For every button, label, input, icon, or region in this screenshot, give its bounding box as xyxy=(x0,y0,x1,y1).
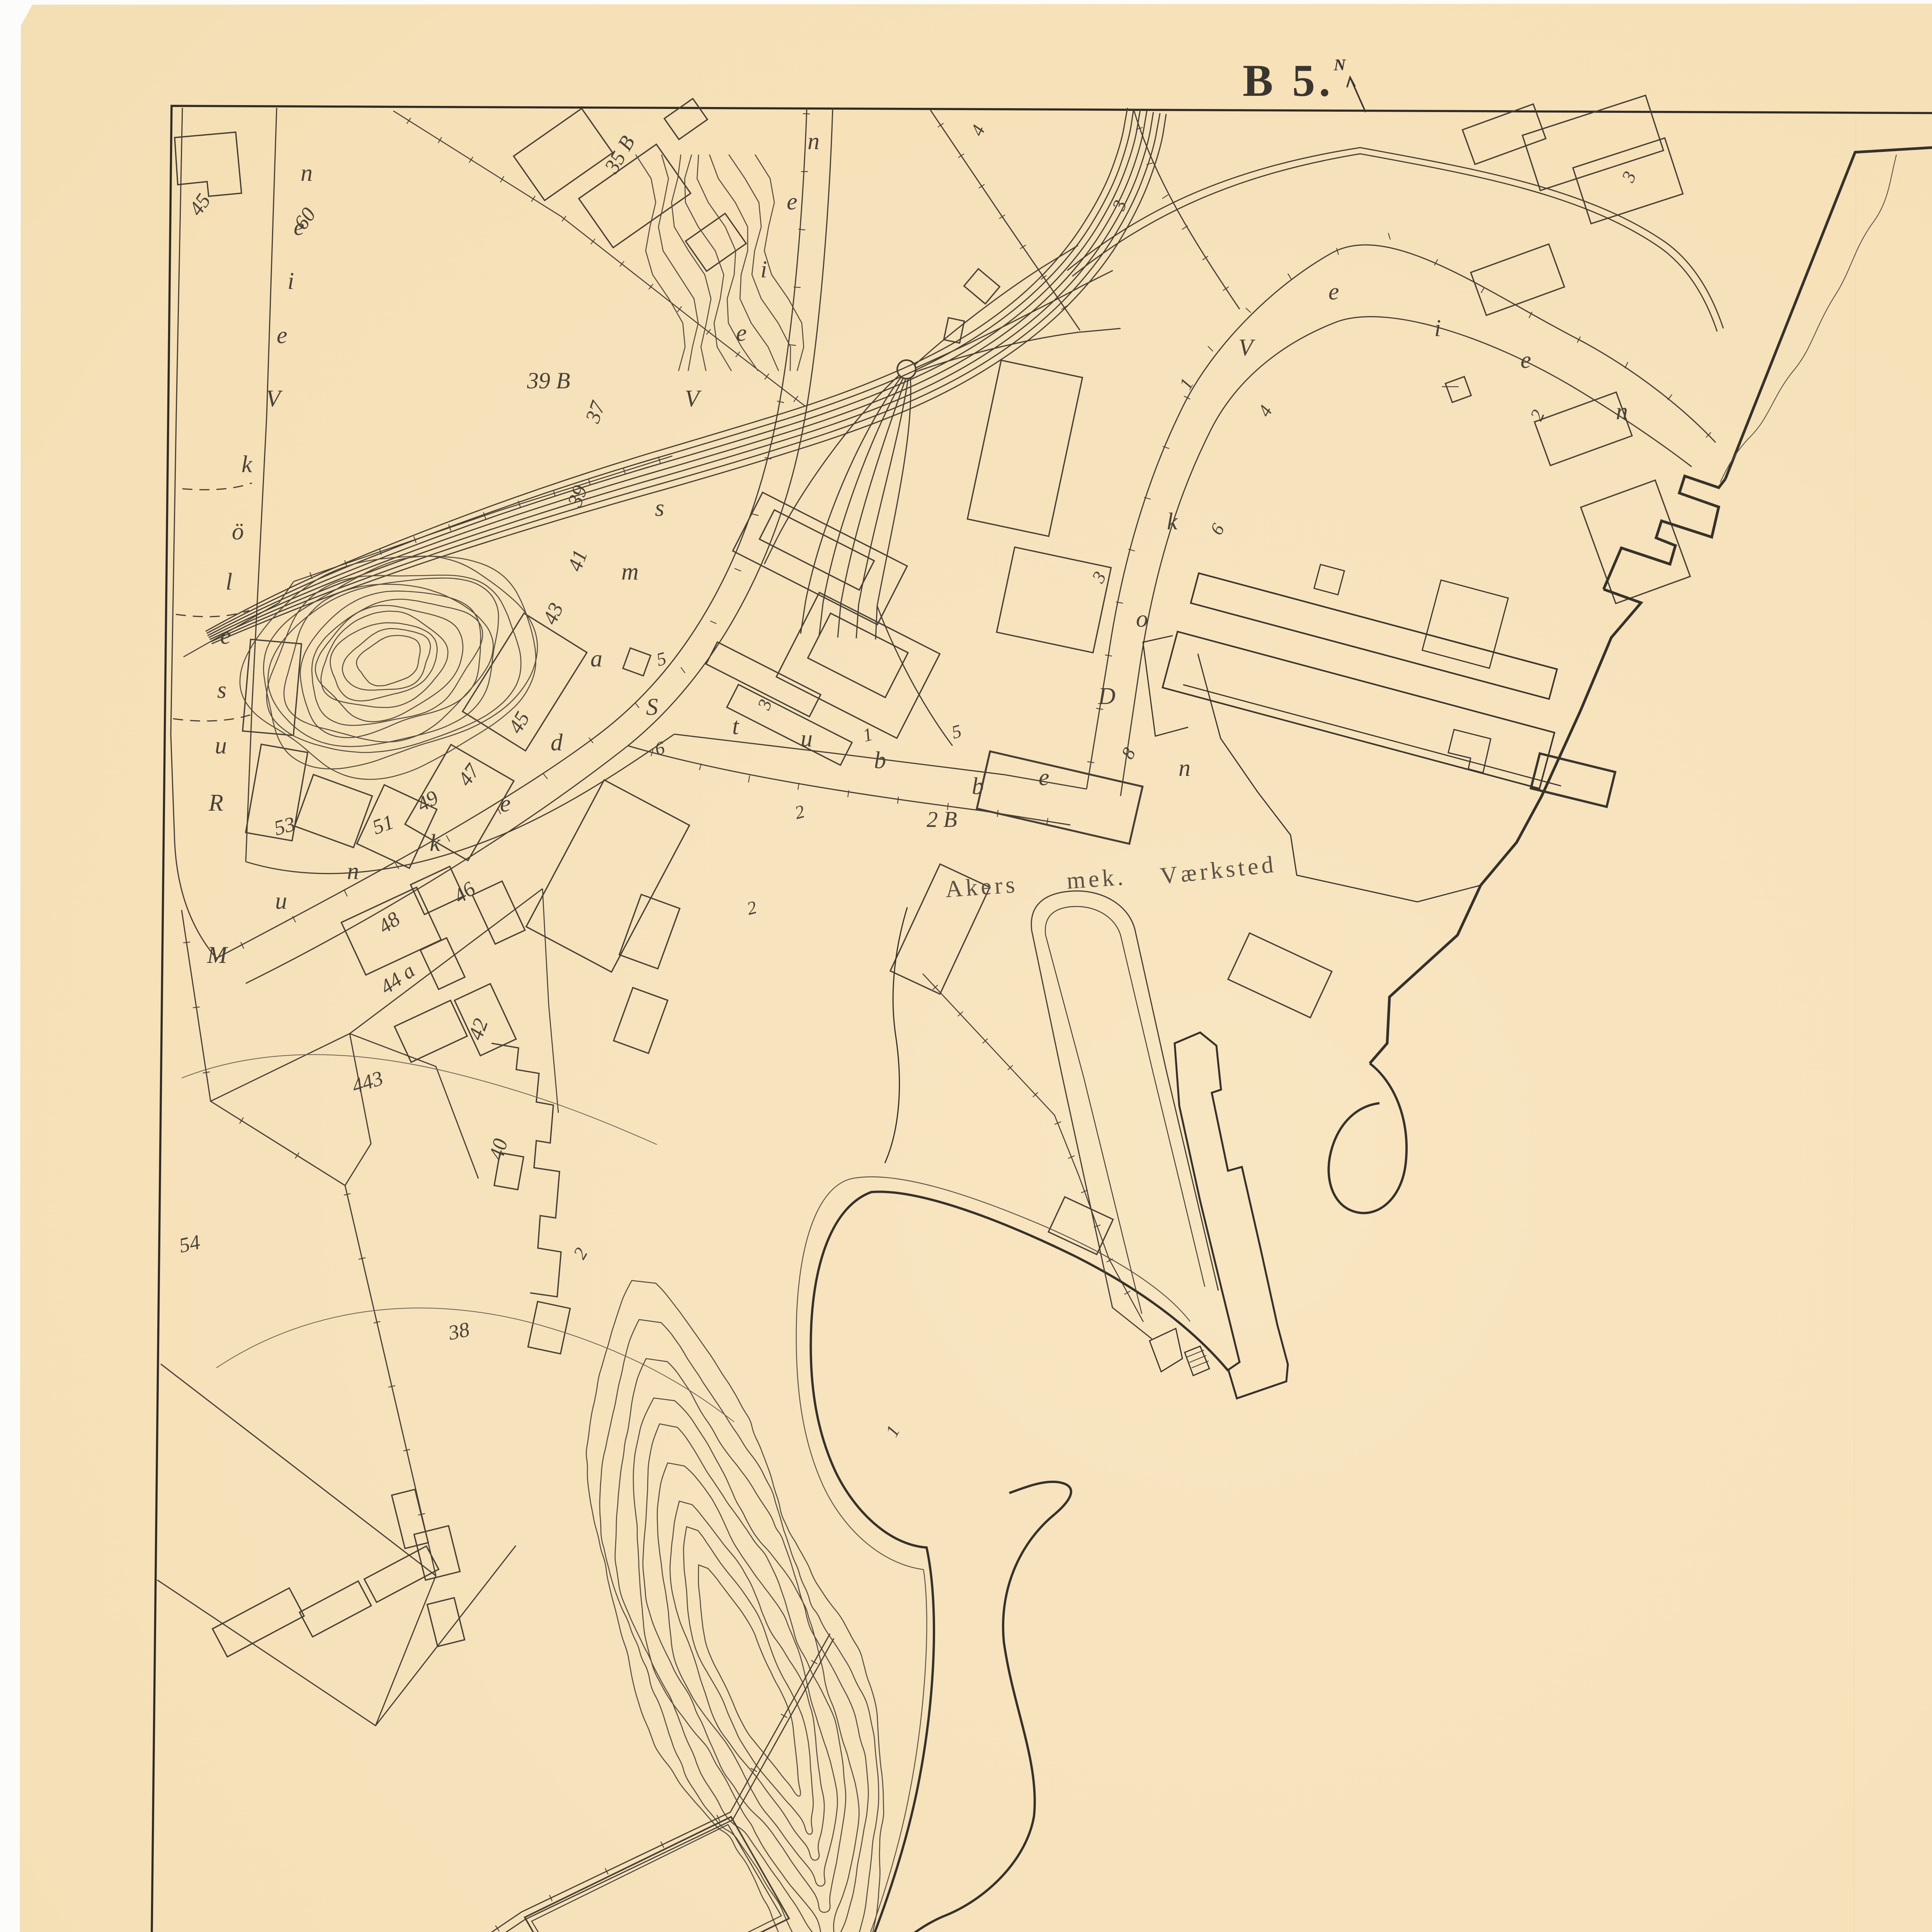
svg-text:u: u xyxy=(801,726,813,752)
svg-text:B 5.: B 5. xyxy=(1243,55,1334,106)
svg-text:b: b xyxy=(972,773,984,799)
svg-text:o: o xyxy=(1136,606,1148,632)
svg-text:s: s xyxy=(655,495,664,521)
svg-text:e: e xyxy=(736,320,747,346)
svg-text:n: n xyxy=(808,128,820,155)
svg-text:V: V xyxy=(266,386,283,412)
svg-text:n: n xyxy=(301,160,313,186)
svg-text:e: e xyxy=(277,322,287,349)
svg-text:i: i xyxy=(760,257,767,283)
svg-text:u: u xyxy=(215,733,227,759)
svg-text:k: k xyxy=(241,451,253,478)
svg-text:e: e xyxy=(1328,279,1339,305)
svg-text:N: N xyxy=(1333,56,1346,74)
svg-text:S: S xyxy=(646,694,658,720)
svg-text:V: V xyxy=(1238,335,1255,361)
svg-text:m: m xyxy=(621,559,639,585)
svg-text:e: e xyxy=(500,791,511,817)
svg-text:e: e xyxy=(787,189,798,215)
svg-text:e: e xyxy=(1039,764,1049,791)
svg-text:39 B: 39 B xyxy=(527,368,570,393)
svg-text:mek.: mek. xyxy=(1066,864,1127,894)
svg-text:a: a xyxy=(590,646,602,672)
svg-text:D: D xyxy=(1098,683,1116,709)
svg-text:Akers: Akers xyxy=(944,871,1019,903)
svg-text:i: i xyxy=(287,268,294,294)
svg-text:V: V xyxy=(685,386,702,412)
svg-text:—: — xyxy=(1442,375,1459,395)
svg-text:d: d xyxy=(551,730,563,756)
svg-text:R: R xyxy=(208,790,223,816)
svg-text:k: k xyxy=(430,830,441,856)
svg-text:n: n xyxy=(347,858,359,884)
svg-text:b: b xyxy=(874,747,886,774)
svg-text:k: k xyxy=(1167,509,1178,535)
svg-text:e: e xyxy=(1520,347,1531,373)
svg-text:2 B: 2 B xyxy=(927,807,957,832)
svg-text:M: M xyxy=(207,942,228,968)
svg-text:e: e xyxy=(220,623,231,649)
svg-text:l: l xyxy=(226,569,232,595)
svg-text:n: n xyxy=(1616,398,1628,425)
svg-text:n: n xyxy=(1179,755,1190,781)
svg-text:u: u xyxy=(275,888,287,914)
svg-text:i: i xyxy=(1434,315,1441,342)
svg-text:t: t xyxy=(732,713,740,740)
svg-text:s: s xyxy=(217,677,226,703)
svg-text:ö: ö xyxy=(232,519,244,545)
